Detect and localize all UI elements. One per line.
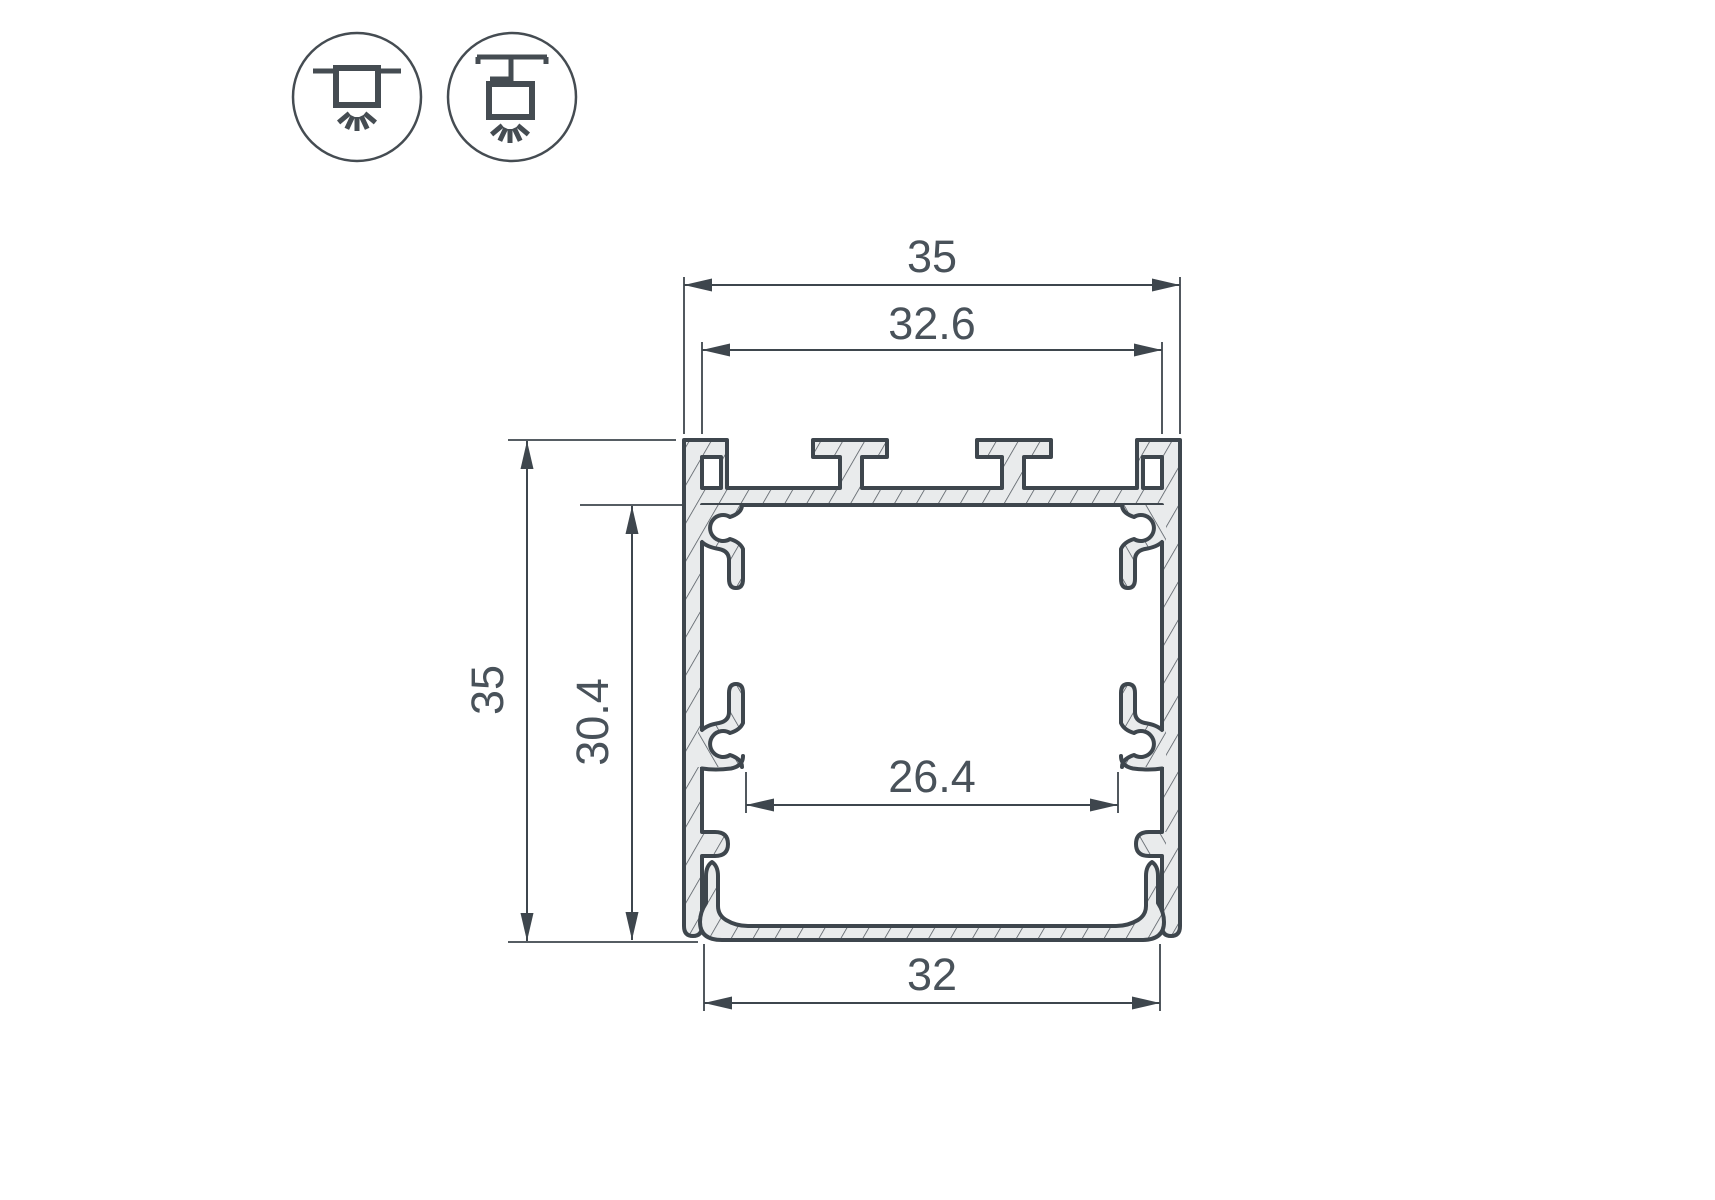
profile-drawing-svg: 35 32.6 35 30.4 [0,0,1715,1200]
dimension-top-inner-width: 32.6 [702,298,1162,434]
profile-body [684,440,1180,936]
mounting-icons [293,33,576,161]
profile-bottom-plate [700,862,1164,940]
pendant-light-icon [448,33,576,161]
dimensions: 35 32.6 35 30.4 [462,231,1180,1011]
dim-outer-width-label: 35 [907,231,957,282]
lamp-body [336,68,378,105]
wall-features-left [698,505,743,856]
screw-boss-upper [698,505,743,588]
drawing-canvas: 35 32.6 35 30.4 [0,0,1715,1200]
dim-bottom-width-label: 32 [907,949,957,1000]
lamp-body [489,84,532,117]
dim-inner-width-label: 26.4 [888,751,976,802]
recessed-light-icon [293,33,421,161]
dim-top-inner-width-label: 32.6 [888,298,976,349]
dimension-inner-height: 30.4 [567,505,684,940]
dimension-inner-width: 26.4 [746,751,1118,813]
dim-outer-height-label: 35 [462,665,513,715]
dim-inner-height-label: 30.4 [567,678,618,766]
profile-cross-section [684,440,1180,940]
wall-features-right [1121,505,1166,856]
dimension-bottom-width: 32 [704,944,1160,1011]
screw-boss-lower [698,684,743,767]
